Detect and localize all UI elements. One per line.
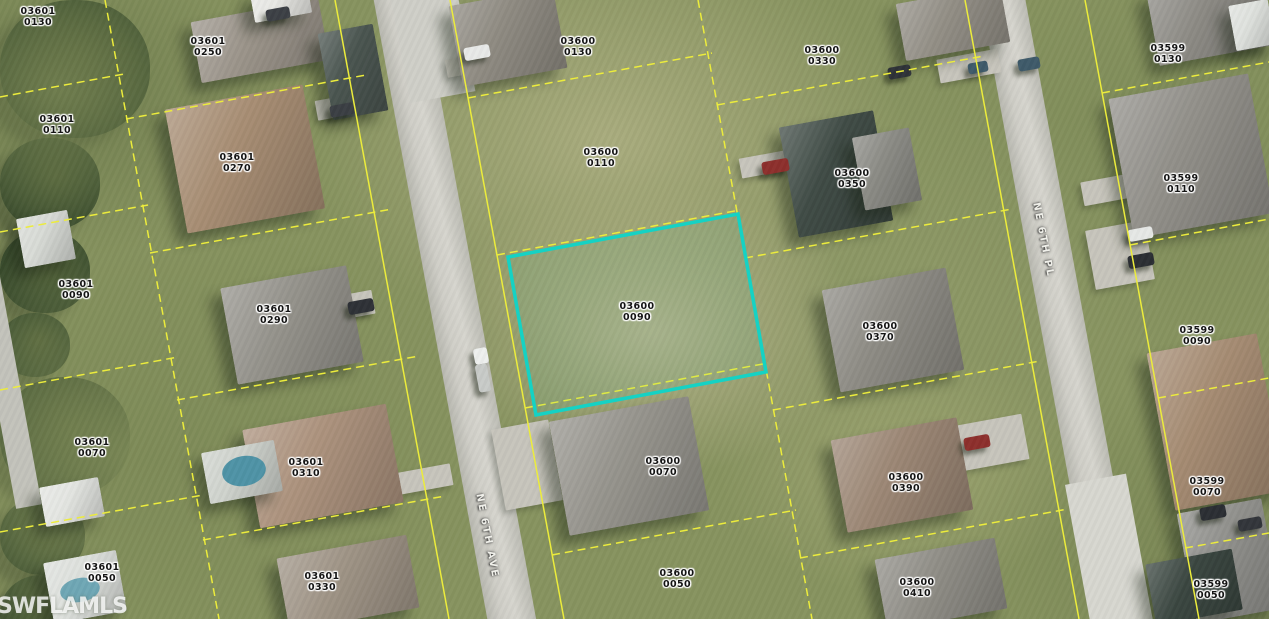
parcel-label-03599-0110: 035990110 [1163,174,1198,196]
parcel-label-03600-0330: 036000330 [804,46,839,68]
parcel-label-03600-0090: 036000090 [619,302,654,324]
parcel-label-03599-0070: 035990070 [1189,477,1224,499]
parcel-label-03601-0130: 036010130 [20,7,55,29]
parcel-label-03601-0250: 036010250 [190,37,225,59]
parcel-label-03601-0310: 036010310 [288,458,323,480]
parcel-label-03600-0050: 036000050 [659,569,694,591]
parcel-label-03599-0090: 035990090 [1179,326,1214,348]
parcel-label-03601-0090: 036010090 [58,280,93,302]
parcel-label-03601-0070: 036010070 [74,438,109,460]
parcel-label-03600-0390: 036000390 [888,473,923,495]
parcel-label-03600-0110: 036000110 [583,148,618,170]
parcel-label-03601-0330: 036010330 [304,572,339,594]
parcel-label-03601-0110: 036010110 [39,115,74,137]
parcel-label-03599-0050: 035990050 [1193,580,1228,602]
parcel-label-03601-0290: 036010290 [256,305,291,327]
parcel-label-03600-0410: 036000410 [899,578,934,600]
aerial-parcel-map: 0360101300360101100360100900360100700360… [0,0,1269,619]
parcel-label-03600-0370: 036000370 [862,322,897,344]
parcel-label-03601-0050: 036010050 [84,563,119,585]
parcel-label-03600-0350: 036000350 [834,169,869,191]
parcel-label-03601-0270: 036010270 [219,153,254,175]
parcel-label-03600-0130: 036000130 [560,37,595,59]
parcel-label-03599-0130: 035990130 [1150,44,1185,66]
parcel-label-03600-0070: 036000070 [645,457,680,479]
watermark: SWFLAMLS [0,594,127,619]
